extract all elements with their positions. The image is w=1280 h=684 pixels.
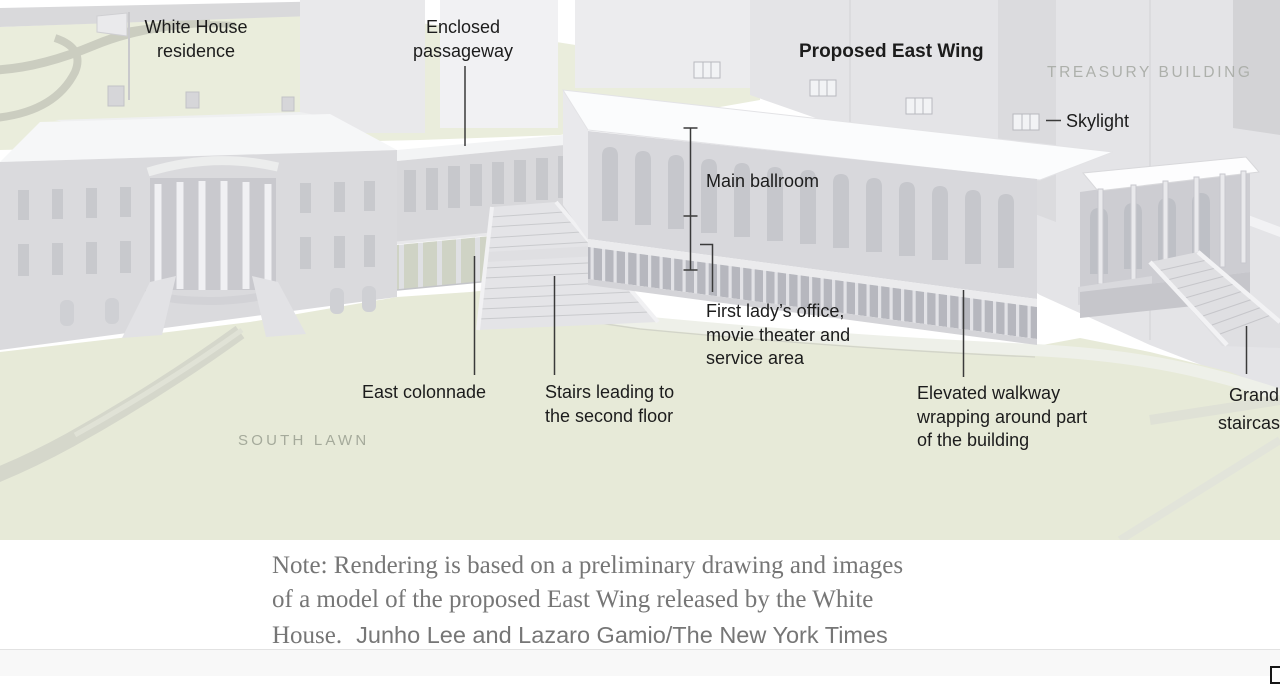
label-grand-staircase: Grand staircase: [1218, 381, 1280, 437]
label-first-lady-office: First lady’s office, movie theater and s…: [706, 300, 850, 371]
note-line-1: Note: Rendering is based on a preliminar…: [272, 549, 903, 583]
label-treasury-building: TREASURY BUILDING: [1047, 61, 1253, 85]
label-stairs-second-floor: Stairs leading to the second floor: [545, 381, 674, 428]
note-line-2: of a model of the proposed East Wing rel…: [272, 583, 903, 617]
note-line-3-text: House.: [272, 622, 342, 649]
source-note: Note: Rendering is based on a preliminar…: [272, 549, 903, 653]
flag: [97, 13, 127, 36]
label-elevated-walkway: Elevated walkway wrapping around part of…: [917, 382, 1087, 453]
corner-widget[interactable]: [1270, 666, 1280, 684]
labeled-skylight: [1013, 114, 1039, 130]
note-line-3: House.Junho Lee and Lazaro Gamio/The New…: [272, 618, 903, 653]
label-proposed-east-wing: Proposed East Wing: [799, 40, 984, 64]
label-main-ballroom: Main ballroom: [706, 170, 819, 194]
label-east-colonnade: East colonnade: [362, 381, 486, 405]
label-south-lawn: SOUTH LAWN: [238, 429, 369, 453]
byline-credit: Junho Lee and Lazaro Gamio/The New York …: [356, 622, 888, 648]
label-skylight: Skylight: [1066, 110, 1129, 134]
label-enclosed-passageway: Enclosed passageway: [413, 16, 513, 63]
label-white-house-residence: White House residence: [144, 16, 247, 63]
footer-strip: [0, 650, 1280, 676]
